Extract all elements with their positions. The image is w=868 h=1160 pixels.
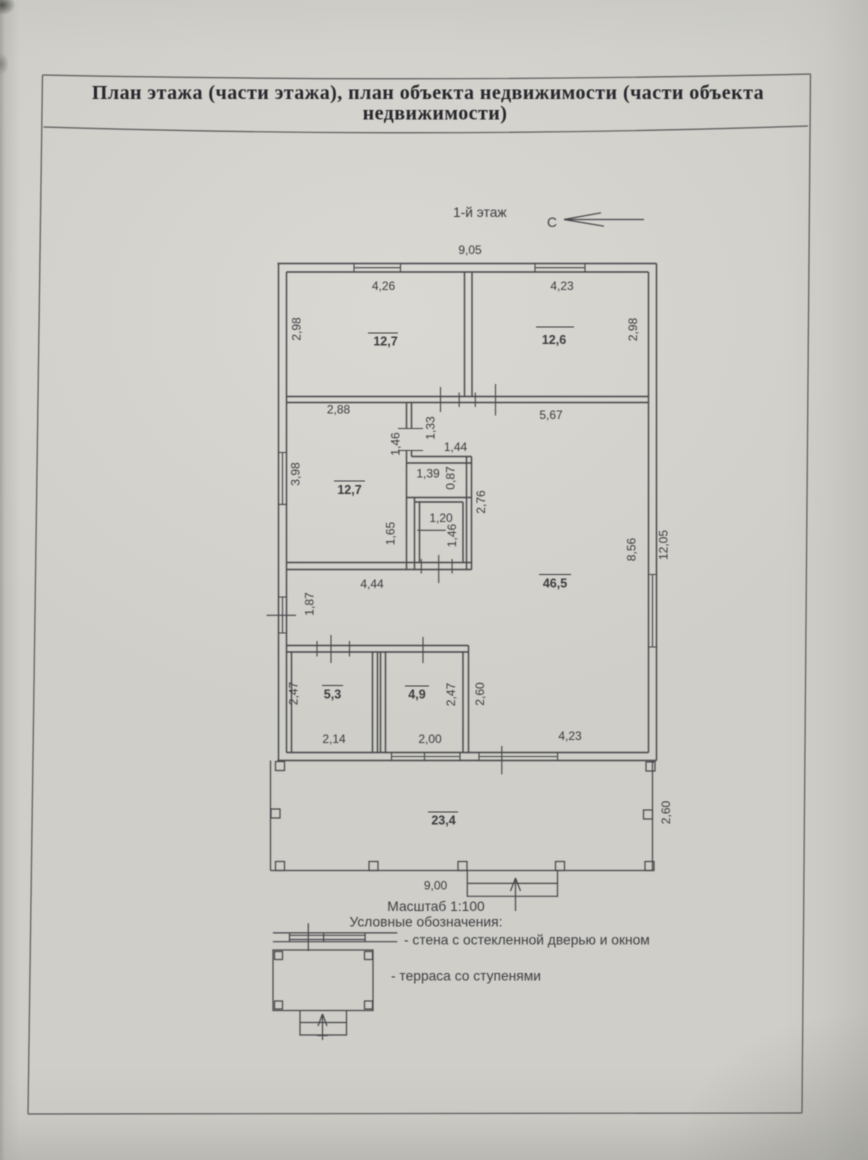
svg-text:2,00: 2,00 [418, 732, 442, 746]
svg-text:Масштаб 1:100: Масштаб 1:100 [387, 899, 485, 914]
svg-text:2,76: 2,76 [474, 490, 488, 514]
svg-text:12,7: 12,7 [337, 483, 361, 497]
svg-text:3,98: 3,98 [289, 462, 303, 486]
svg-text:5,67: 5,67 [539, 408, 563, 422]
svg-text:1,39: 1,39 [416, 467, 440, 481]
svg-text:4,9: 4,9 [408, 688, 425, 702]
svg-text:План этажа (части этажа), план: План этажа (части этажа), план объекта н… [92, 82, 764, 104]
svg-text:4,23: 4,23 [558, 729, 582, 743]
svg-text:- терраса со ступенями: - терраса со ступенями [391, 969, 541, 984]
svg-text:2,47: 2,47 [444, 682, 458, 706]
svg-text:2,47: 2,47 [287, 681, 301, 705]
svg-text:8,56: 8,56 [625, 537, 639, 561]
svg-text:1,46: 1,46 [445, 523, 459, 547]
svg-text:1-й этаж: 1-й этаж [453, 205, 507, 220]
svg-text:2,60: 2,60 [473, 682, 487, 706]
svg-text:4,44: 4,44 [360, 577, 384, 591]
svg-text:9,05: 9,05 [458, 243, 482, 257]
svg-text:2,98: 2,98 [290, 317, 304, 341]
svg-text:1,44: 1,44 [444, 440, 468, 454]
svg-text:2,14: 2,14 [322, 732, 346, 746]
svg-text:12,6: 12,6 [542, 333, 566, 347]
svg-text:недвижимости): недвижимости) [363, 103, 508, 125]
svg-text:12,7: 12,7 [373, 335, 397, 349]
svg-text:1,65: 1,65 [384, 521, 398, 545]
svg-text:1,33: 1,33 [424, 416, 438, 440]
svg-text:1,87: 1,87 [303, 592, 317, 616]
svg-text:1,46: 1,46 [389, 432, 403, 456]
svg-text:12,05: 12,05 [657, 530, 671, 560]
svg-text:0,87: 0,87 [444, 466, 458, 490]
svg-text:46,5: 46,5 [543, 577, 567, 591]
svg-text:2,60: 2,60 [659, 800, 673, 824]
svg-text:23,4: 23,4 [431, 814, 455, 828]
svg-text:С: С [547, 215, 557, 230]
svg-text:- стена с остекленной дверью и: - стена с остекленной дверью и окном [404, 933, 650, 948]
svg-text:4,23: 4,23 [550, 279, 574, 293]
svg-text:2,88: 2,88 [327, 403, 351, 417]
svg-text:2,98: 2,98 [626, 317, 640, 341]
svg-text:5,3: 5,3 [324, 688, 341, 702]
svg-text:9,00: 9,00 [424, 879, 448, 893]
svg-text:4,26: 4,26 [372, 279, 396, 293]
svg-text:1,20: 1,20 [429, 511, 453, 525]
svg-text:Условные обозначения:: Условные обозначения: [350, 915, 503, 930]
